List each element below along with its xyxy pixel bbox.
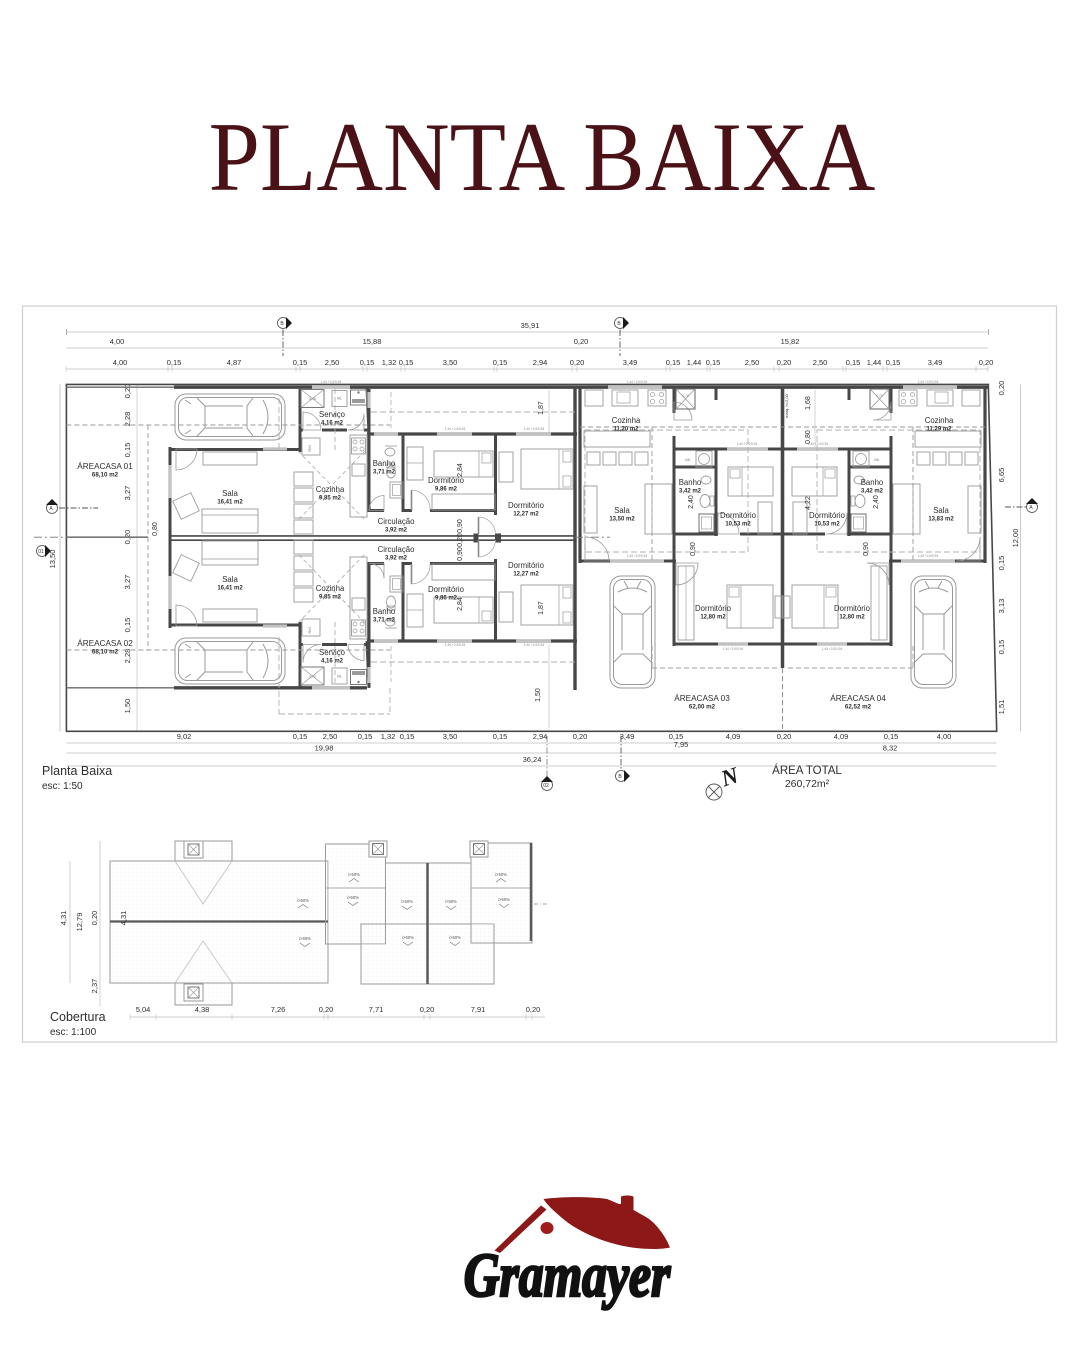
svg-text:i>50%: i>50% — [449, 935, 461, 940]
svg-text:3,92 m2: 3,92 m2 — [385, 528, 408, 534]
svg-text:9,86 m2: 9,86 m2 — [435, 596, 458, 602]
svg-text:19,98: 19,98 — [315, 744, 334, 753]
svg-text:16,41 m2: 16,41 m2 — [217, 500, 243, 506]
svg-text:1,44 +2,0/0,94: 1,44 +2,0/0,94 — [737, 442, 758, 446]
svg-text:1,44 +2,0/0,94: 1,44 +2,0/0,94 — [524, 643, 545, 647]
svg-text:esc: 1:100: esc: 1:100 — [50, 1027, 97, 1038]
svg-text:0,20: 0,20 — [319, 1005, 334, 1014]
svg-text:1,44 +2,0/0,94: 1,44 +2,0/0,94 — [445, 427, 466, 431]
svg-text:2,37: 2,37 — [90, 979, 99, 994]
svg-text:0,20: 0,20 — [777, 732, 792, 741]
svg-text:Gramayer: Gramayer — [464, 1242, 672, 1310]
svg-text:i>50%: i>50% — [347, 895, 359, 900]
svg-text:9,02: 9,02 — [177, 732, 192, 741]
svg-text:Circulação: Circulação — [378, 545, 415, 554]
svg-text:Serviço: Serviço — [319, 648, 346, 657]
svg-text:Cozinha: Cozinha — [925, 416, 954, 425]
svg-text:Dormitório: Dormitório — [695, 604, 732, 613]
svg-text:1,44 +2,0/0,94: 1,44 +2,0/0,94 — [524, 427, 545, 431]
svg-text:4,31: 4,31 — [59, 911, 68, 926]
svg-text:1,44 +2,0/0,94: 1,44 +2,0/0,94 — [627, 380, 648, 384]
svg-text:0,15: 0,15 — [399, 358, 414, 367]
svg-text:Dormitório: Dormitório — [508, 501, 545, 510]
svg-text:9,85 m2: 9,85 m2 — [319, 595, 342, 601]
svg-text:0,20: 0,20 — [570, 358, 585, 367]
svg-text:Circulação: Circulação — [378, 517, 415, 526]
svg-text:7,26: 7,26 — [271, 1005, 286, 1014]
svg-text:62,52 m2: 62,52 m2 — [845, 704, 872, 711]
svg-text:4,00: 4,00 — [110, 337, 125, 346]
svg-text:0,15: 0,15 — [360, 358, 375, 367]
svg-text:0,15: 0,15 — [293, 358, 308, 367]
svg-text:i>50%: i>50% — [348, 872, 360, 877]
svg-text:0,90: 0,90 — [863, 542, 870, 556]
svg-text:i>50%: i>50% — [297, 898, 309, 903]
svg-text:Sala: Sala — [222, 575, 238, 584]
svg-text:0,15: 0,15 — [666, 358, 681, 367]
svg-text:35,91: 35,91 — [521, 321, 540, 330]
svg-text:8,32: 8,32 — [883, 744, 898, 753]
svg-text:Cobertura: Cobertura — [50, 1010, 106, 1024]
svg-text:ÁREACASA 01: ÁREACASA 01 — [77, 461, 133, 471]
svg-text:ML: ML — [337, 675, 342, 679]
svg-text:0,15: 0,15 — [997, 640, 1006, 655]
svg-text:ML: ML — [874, 457, 880, 462]
svg-text:1,32: 1,32 — [382, 358, 397, 367]
svg-text:0,15: 0,15 — [493, 358, 508, 367]
svg-text:2,84: 2,84 — [457, 597, 464, 611]
svg-text:i>50%: i>50% — [402, 935, 414, 940]
svg-text:1,44 +2,0/0,94: 1,44 +2,0/0,94 — [627, 554, 648, 558]
svg-text:Dormitório: Dormitório — [428, 585, 465, 594]
svg-text:ML: ML — [337, 397, 342, 401]
svg-text:4,16 m2: 4,16 m2 — [321, 421, 344, 427]
svg-text:1,44 +2,0/0,94: 1,44 +2,0/0,94 — [918, 554, 939, 558]
svg-text:1,44 +2,0/0,94: 1,44 +2,0/0,94 — [808, 442, 829, 446]
svg-text:4,16 m2: 4,16 m2 — [321, 659, 344, 665]
svg-text:Dormitório: Dormitório — [720, 511, 757, 520]
svg-text:7,95: 7,95 — [674, 740, 689, 749]
svg-text:12,00: 12,00 — [1011, 529, 1020, 548]
svg-text:2,50: 2,50 — [325, 358, 340, 367]
svg-text:0,20: 0,20 — [420, 1005, 435, 1014]
svg-text:0,15: 0,15 — [358, 732, 373, 741]
svg-text:1,50: 1,50 — [123, 699, 132, 714]
svg-text:0,80: 0,80 — [152, 522, 159, 536]
svg-text:0,20: 0,20 — [526, 1005, 541, 1014]
svg-text:4,31: 4,31 — [119, 911, 128, 926]
svg-text:marq. h=2,00: marq. h=2,00 — [784, 393, 789, 417]
svg-text:i>50%: i>50% — [299, 936, 311, 941]
svg-text:12,27 m2: 12,27 m2 — [513, 512, 539, 518]
svg-text:12,80 m2: 12,80 m2 — [839, 615, 865, 621]
svg-text:i>50%: i>50% — [498, 897, 510, 902]
svg-text:0,20: 0,20 — [573, 732, 588, 741]
svg-text:4,87: 4,87 — [227, 358, 242, 367]
svg-text:15,88: 15,88 — [363, 337, 382, 346]
svg-text:3,50: 3,50 — [443, 732, 458, 741]
svg-text:12,80 m2: 12,80 m2 — [700, 615, 726, 621]
svg-text:1,44 +2,0/0,94: 1,44 +2,0/0,94 — [918, 380, 939, 384]
svg-text:3,49: 3,49 — [623, 358, 638, 367]
svg-text:1,44 +2,0/0,94: 1,44 +2,0/0,94 — [723, 647, 744, 651]
svg-text:01: 01 — [38, 549, 44, 555]
svg-text:2,50: 2,50 — [323, 732, 338, 741]
svg-text:1,44 +2,0/0,94: 1,44 +2,0/0,94 — [445, 643, 466, 647]
svg-text:16,41 m2: 16,41 m2 — [217, 586, 243, 592]
svg-text:5,04: 5,04 — [136, 1005, 151, 1014]
svg-text:9,86 m2: 9,86 m2 — [435, 487, 458, 493]
svg-text:1,68: 1,68 — [805, 396, 812, 410]
svg-text:2,50: 2,50 — [813, 358, 828, 367]
svg-text:12,27 m2: 12,27 m2 — [513, 572, 539, 578]
svg-text:0,15: 0,15 — [293, 732, 308, 741]
svg-text:i>50%: i>50% — [401, 899, 413, 904]
svg-text:0,15: 0,15 — [167, 358, 182, 367]
svg-text:0,15: 0,15 — [886, 358, 901, 367]
svg-text:2,40: 2,40 — [688, 495, 695, 509]
svg-text:Sala: Sala — [614, 506, 630, 515]
svg-text:4,38: 4,38 — [195, 1005, 210, 1014]
svg-text:11,20 m2: 11,20 m2 — [613, 427, 639, 433]
svg-text:Sala: Sala — [933, 506, 949, 515]
svg-text:2,84: 2,84 — [457, 463, 464, 477]
svg-text:0,15: 0,15 — [884, 732, 899, 741]
svg-text:i>50%: i>50% — [445, 899, 457, 904]
svg-text:Banho: Banho — [373, 607, 396, 616]
svg-text:0,15: 0,15 — [706, 358, 721, 367]
svg-text:4,22: 4,22 — [805, 496, 812, 510]
svg-text:3,49: 3,49 — [620, 732, 635, 741]
svg-text:Ref.: Ref. — [307, 444, 312, 451]
svg-text:10,53 m2: 10,53 m2 — [814, 522, 840, 528]
svg-text:ÁREA TOTAL: ÁREA TOTAL — [772, 764, 842, 777]
svg-text:0,20: 0,20 — [574, 337, 589, 346]
svg-text:4,00: 4,00 — [113, 358, 128, 367]
svg-text:Banho: Banho — [861, 478, 884, 487]
svg-text:1,44 +2,0/0,94: 1,44 +2,0/0,94 — [321, 380, 342, 384]
svg-text:ÁREACASA 04: ÁREACASA 04 — [830, 693, 886, 703]
svg-text:0,15: 0,15 — [400, 732, 415, 741]
svg-text:Banho: Banho — [679, 478, 702, 487]
svg-text:ML: ML — [685, 457, 691, 462]
svg-text:Serviço: Serviço — [319, 410, 346, 419]
svg-text:0,20: 0,20 — [777, 358, 792, 367]
svg-text:0,70: 0,70 — [682, 394, 688, 398]
svg-text:Planta Baixa: Planta Baixa — [42, 764, 112, 778]
svg-text:Cozinha: Cozinha — [612, 416, 641, 425]
svg-text:0,20: 0,20 — [457, 533, 464, 547]
svg-text:1,44: 1,44 — [867, 358, 882, 367]
svg-text:esc: 1:50: esc: 1:50 — [42, 781, 83, 792]
svg-text:7,91: 7,91 — [471, 1005, 486, 1014]
svg-text:62,00 m2: 62,00 m2 — [689, 704, 716, 711]
svg-text:3,42 m2: 3,42 m2 — [679, 489, 702, 495]
svg-text:0,15: 0,15 — [997, 556, 1006, 571]
svg-text:PLANTA BAIXA: PLANTA BAIXA — [209, 102, 876, 212]
svg-text:3,92 m2: 3,92 m2 — [385, 556, 408, 562]
svg-text:Banho: Banho — [373, 459, 396, 468]
svg-text:0,20: 0,20 — [997, 381, 1006, 396]
svg-text:ÁREACASA 02: ÁREACASA 02 — [77, 638, 133, 648]
svg-text:36,24: 36,24 — [523, 755, 542, 764]
svg-text:Ref.: Ref. — [307, 626, 312, 633]
svg-text:13,50 m2: 13,50 m2 — [609, 517, 635, 523]
svg-text:1,51: 1,51 — [997, 700, 1006, 715]
svg-text:4,09: 4,09 — [726, 732, 741, 741]
svg-text:3,50: 3,50 — [443, 358, 458, 367]
svg-text:0,70: 0,70 — [309, 675, 316, 679]
svg-text:0,20: 0,20 — [979, 358, 994, 367]
svg-text:0,90: 0,90 — [457, 547, 464, 561]
svg-text:6,65: 6,65 — [997, 468, 1006, 483]
svg-text:9,85 m2: 9,85 m2 — [319, 496, 342, 502]
svg-text:0,20: 0,20 — [123, 384, 132, 399]
svg-text:3,27: 3,27 — [123, 486, 132, 501]
svg-text:2,28: 2,28 — [123, 649, 132, 664]
svg-text:1,32: 1,32 — [381, 732, 396, 741]
svg-text:0,15: 0,15 — [846, 358, 861, 367]
svg-text:0,15: 0,15 — [123, 618, 132, 633]
svg-text:2,94: 2,94 — [533, 358, 548, 367]
svg-text:0,15: 0,15 — [123, 443, 132, 458]
svg-text:Cozinha: Cozinha — [316, 485, 345, 494]
svg-text:i>50%: i>50% — [495, 872, 507, 877]
svg-text:3,42 m2: 3,42 m2 — [861, 489, 884, 495]
svg-text:12,79: 12,79 — [75, 913, 84, 932]
svg-text:2,94: 2,94 — [533, 732, 548, 741]
svg-text:0,90: 0,90 — [690, 542, 697, 556]
svg-text:3,71 m2: 3,71 m2 — [373, 618, 396, 624]
svg-text:Dormitório: Dormitório — [508, 561, 545, 570]
svg-text:Dormitório: Dormitório — [834, 604, 871, 613]
svg-text:68,10 m2: 68,10 m2 — [92, 649, 119, 656]
svg-text:3,49: 3,49 — [928, 358, 943, 367]
svg-text:7,71: 7,71 — [369, 1005, 384, 1014]
svg-text:Sala: Sala — [222, 489, 238, 498]
svg-text:1,87: 1,87 — [538, 601, 545, 615]
svg-text:3,27: 3,27 — [123, 575, 132, 590]
svg-text:15,82: 15,82 — [781, 337, 800, 346]
svg-text:2,40: 2,40 — [873, 495, 880, 509]
svg-text:1,44: 1,44 — [687, 358, 702, 367]
svg-text:3,13: 3,13 — [997, 599, 1006, 614]
svg-text:Dormitório: Dormitório — [809, 511, 846, 520]
svg-text:11,29 m2: 11,29 m2 — [926, 427, 952, 433]
svg-text:ÁREACASA 03: ÁREACASA 03 — [674, 693, 730, 703]
svg-text:1,50: 1,50 — [535, 688, 542, 702]
svg-text:2,28: 2,28 — [123, 412, 132, 427]
svg-text:0,15: 0,15 — [493, 732, 508, 741]
svg-text:2,50: 2,50 — [745, 358, 760, 367]
svg-text:260,72m²: 260,72m² — [785, 778, 830, 790]
svg-text:02: 02 — [543, 783, 549, 789]
svg-text:10,53 m2: 10,53 m2 — [725, 522, 751, 528]
svg-text:4,00: 4,00 — [937, 732, 952, 741]
svg-text:4,76: 4,76 — [309, 397, 316, 401]
svg-text:13,83 m2: 13,83 m2 — [928, 517, 954, 523]
svg-text:0,20: 0,20 — [90, 911, 99, 926]
svg-text:3,71 m2: 3,71 m2 — [373, 470, 396, 476]
svg-text:0,90: 0,90 — [457, 519, 464, 533]
svg-text:68,10 m2: 68,10 m2 — [92, 472, 119, 479]
svg-text:1,44 +2,0/0,94: 1,44 +2,0/0,94 — [822, 647, 843, 651]
svg-text:4,09: 4,09 — [834, 732, 849, 741]
svg-text:Cozinha: Cozinha — [316, 584, 345, 593]
svg-text:1,87: 1,87 — [538, 401, 545, 415]
